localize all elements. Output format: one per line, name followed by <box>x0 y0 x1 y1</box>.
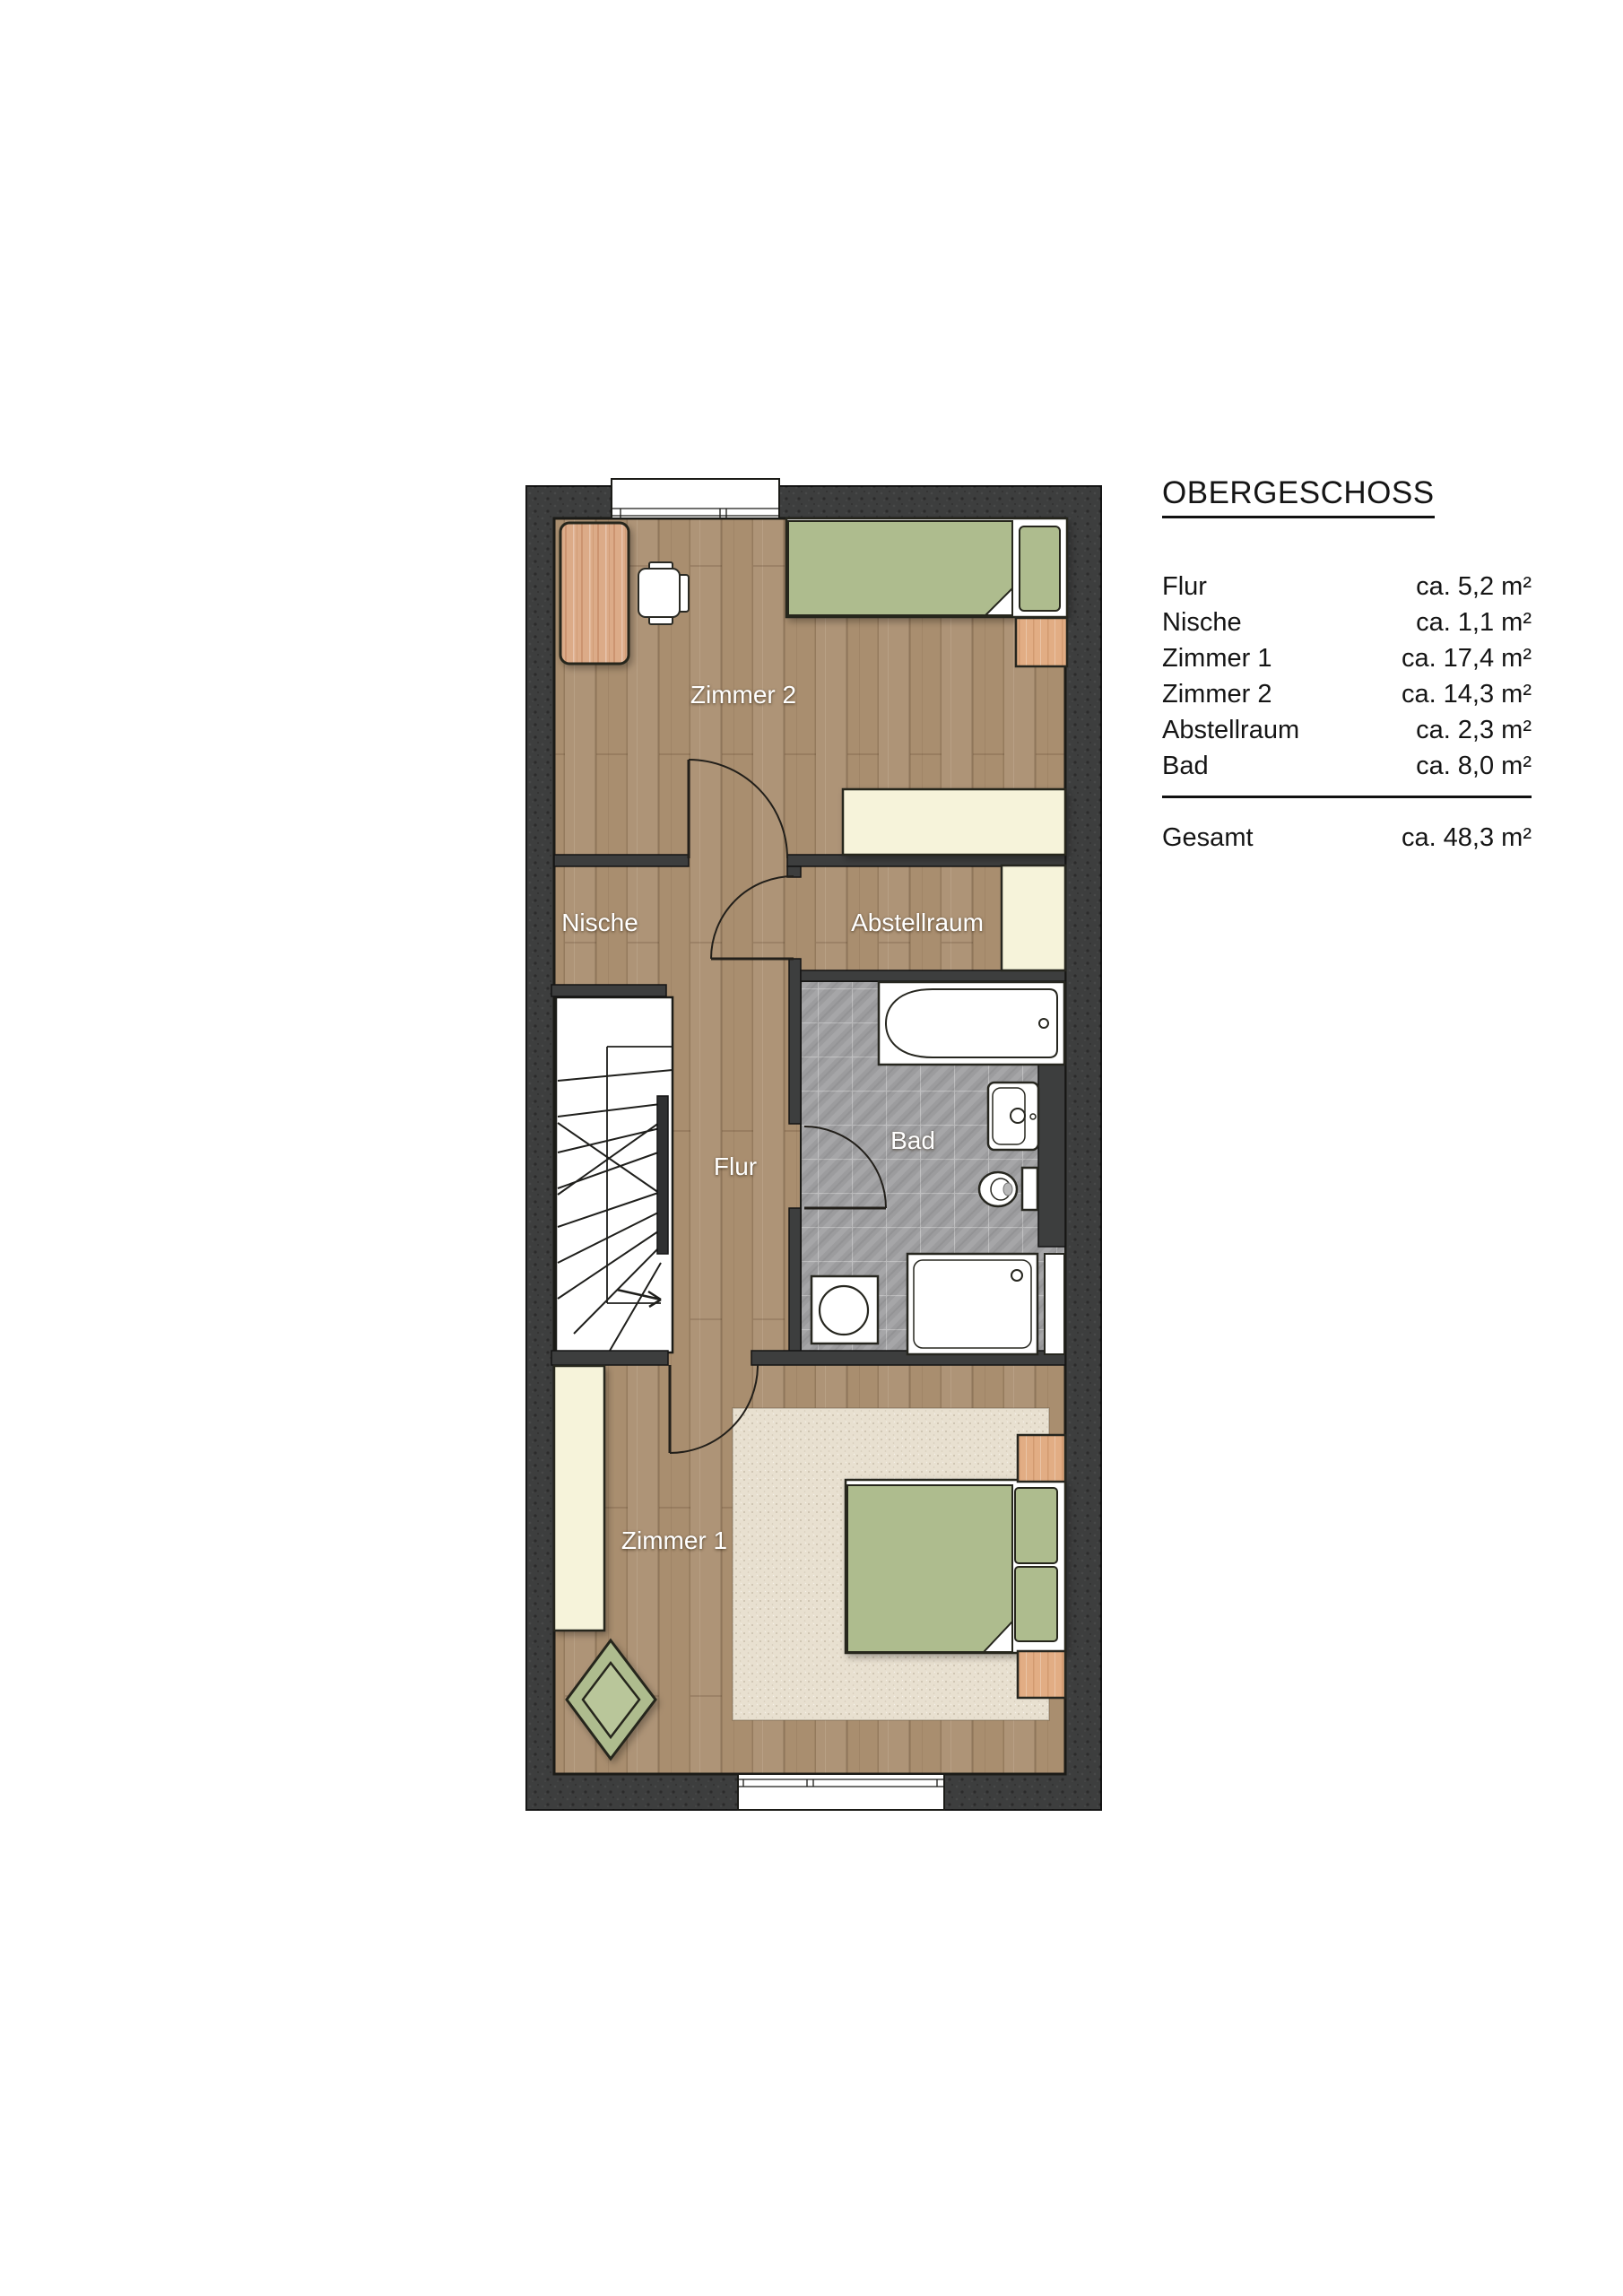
sideboard <box>843 789 1065 855</box>
nightstand-zimmer1-bottom <box>1018 1651 1065 1698</box>
area-value: ca. 2,3 m² <box>1416 712 1532 748</box>
total-label: Gesamt <box>1162 820 1254 856</box>
legend-row: Nische ca. 1,1 m² <box>1162 604 1532 640</box>
area-value: ca. 17,4 m² <box>1402 640 1532 676</box>
legend-row: Flur ca. 5,2 m² <box>1162 569 1532 604</box>
total-value: ca. 48,3 m² <box>1402 820 1532 856</box>
washbasin <box>988 1083 1038 1150</box>
legend-row: Bad ca. 8,0 m² <box>1162 748 1532 784</box>
room-label-nische: Nische <box>561 909 638 936</box>
room-name: Zimmer 1 <box>1162 640 1271 676</box>
stair-handrail <box>657 1096 668 1254</box>
toilet <box>979 1168 1037 1210</box>
room-label-zimmer2: Zimmer 2 <box>690 681 796 709</box>
room-label-abstellraum: Abstellraum <box>851 909 984 936</box>
pillow <box>1015 1567 1057 1641</box>
legend-row: Abstellraum ca. 2,3 m² <box>1162 712 1532 748</box>
bed-zimmer2 <box>786 518 1067 617</box>
room-name: Bad <box>1162 748 1209 784</box>
legend-separator <box>1162 796 1532 798</box>
staircase <box>556 997 673 1352</box>
wardrobe <box>554 1366 604 1631</box>
room-label-flur: Flur <box>714 1152 757 1180</box>
floor-plan: Zimmer 2 Nische Abstellraum Flur Bad Zim… <box>520 474 1112 1830</box>
room-label-zimmer1: Zimmer 1 <box>621 1526 727 1554</box>
room-name: Nische <box>1162 604 1242 640</box>
washing-machine <box>811 1276 878 1344</box>
room-name: Abstellraum <box>1162 712 1299 748</box>
drain <box>1011 1270 1022 1281</box>
legend-total-row: Gesamt ca. 48,3 m² <box>1162 820 1532 856</box>
nightstand-zimmer1-top <box>1018 1435 1065 1482</box>
drain <box>1039 1019 1048 1028</box>
faucet <box>1011 1109 1025 1123</box>
shower <box>907 1254 1037 1354</box>
top-window <box>612 479 779 518</box>
bath-niche <box>1045 1254 1064 1354</box>
legend: OBERGESCHOSS Flur ca. 5,2 m² Nische ca. … <box>1162 475 1532 856</box>
nightstand-zimmer2 <box>1016 618 1067 666</box>
room-name: Zimmer 2 <box>1162 676 1271 712</box>
bottom-window <box>738 1774 944 1810</box>
bed-zimmer1 <box>846 1480 1065 1653</box>
storage-closet <box>1002 865 1065 970</box>
legend-row: Zimmer 2 ca. 14,3 m² <box>1162 676 1532 712</box>
area-value: ca. 5,2 m² <box>1416 569 1532 604</box>
pillow <box>1015 1488 1057 1563</box>
area-value: ca. 8,0 m² <box>1416 748 1532 784</box>
desk <box>560 523 629 664</box>
legend-rows: Flur ca. 5,2 m² Nische ca. 1,1 m² Zimmer… <box>1162 569 1532 784</box>
bathtub <box>879 982 1064 1065</box>
legend-title: OBERGESCHOSS <box>1162 475 1435 518</box>
area-value: ca. 14,3 m² <box>1402 676 1532 712</box>
area-value: ca. 1,1 m² <box>1416 604 1532 640</box>
pillow <box>1020 526 1060 611</box>
room-name: Flur <box>1162 569 1207 604</box>
legend-row: Zimmer 1 ca. 17,4 m² <box>1162 640 1532 676</box>
page: Zimmer 2 Nische Abstellraum Flur Bad Zim… <box>0 0 1623 2296</box>
room-label-bad: Bad <box>890 1126 935 1154</box>
